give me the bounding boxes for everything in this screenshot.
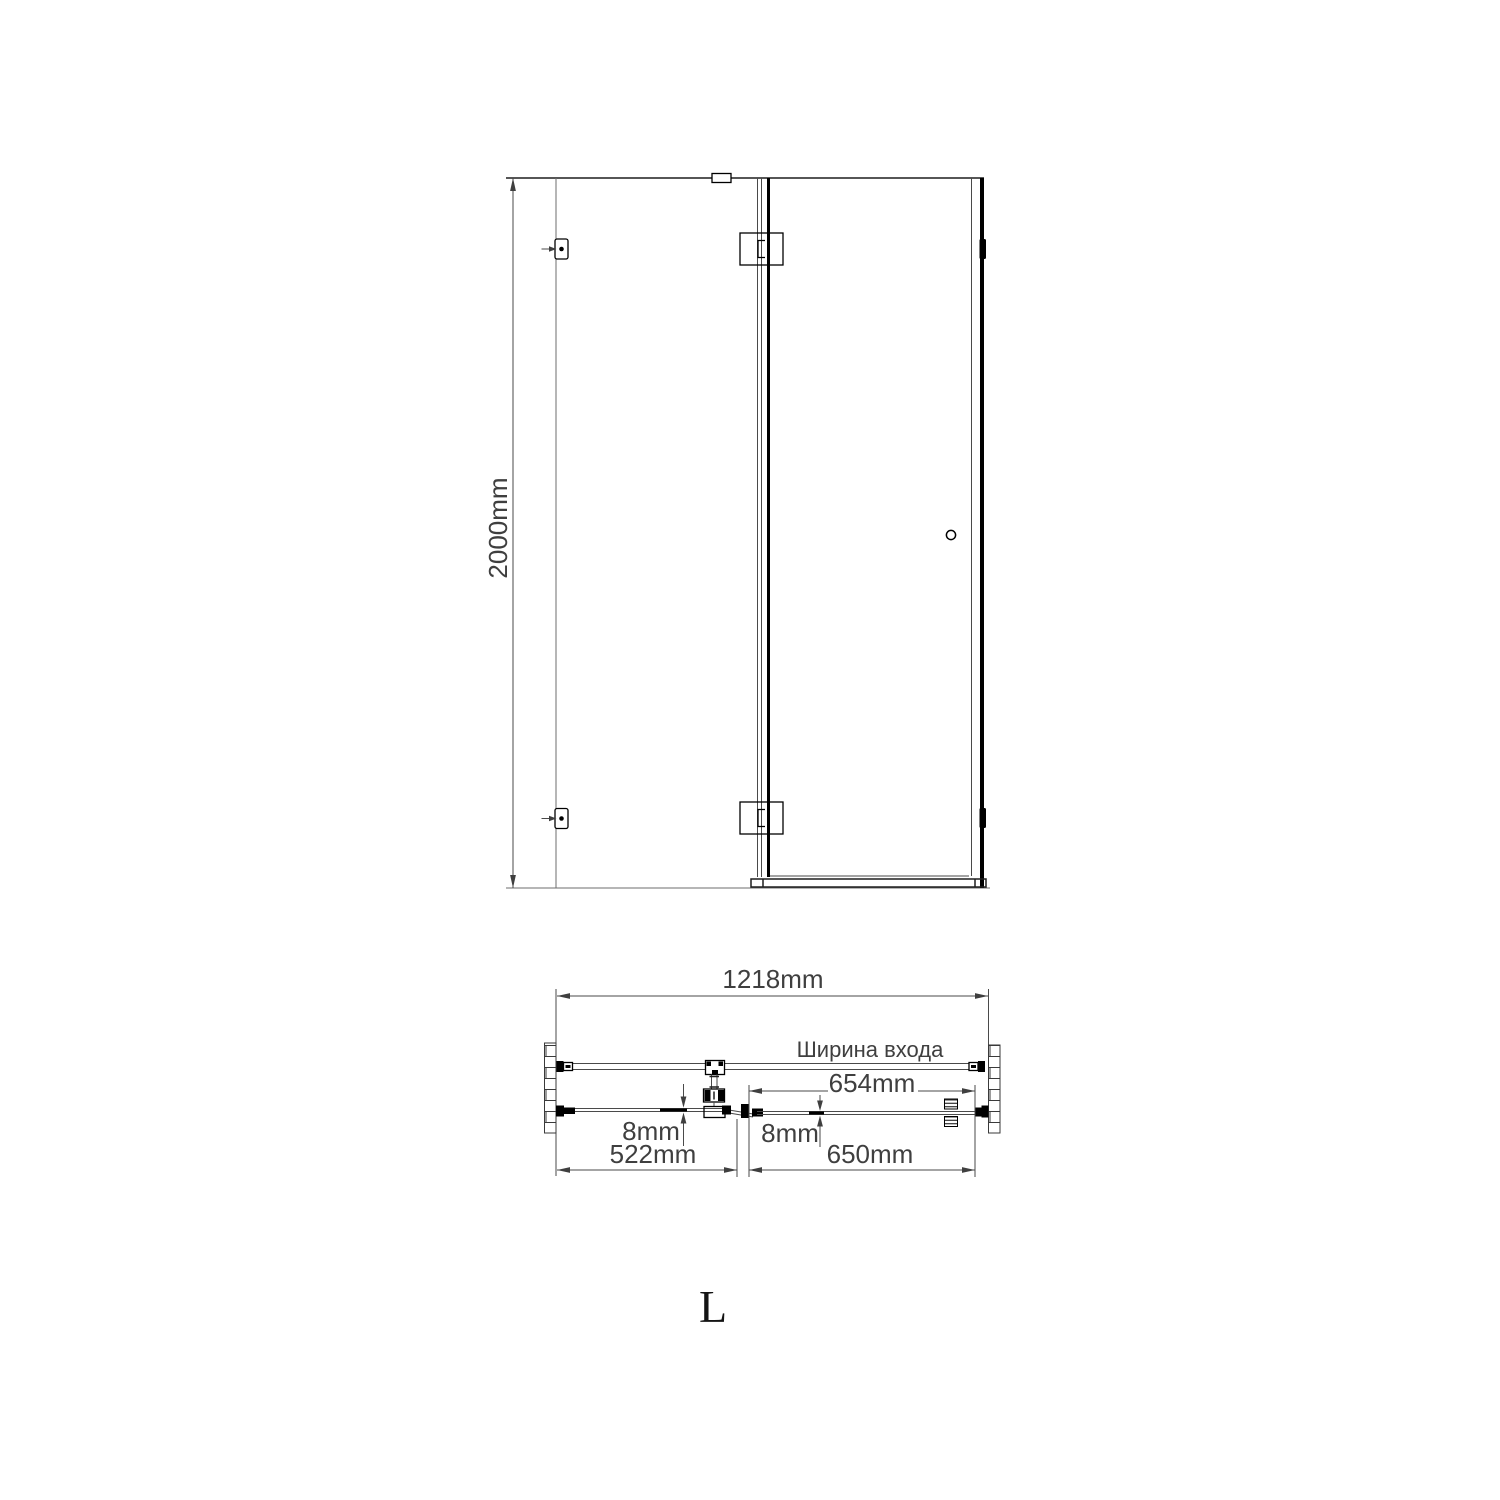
plan-view: 1218mm (545, 964, 1001, 1177)
top-support-bracket (712, 174, 731, 183)
right-wall-section (989, 1045, 1001, 1133)
wall-bracket-top (542, 239, 569, 259)
entrance-width-label: Ширина входа (797, 1037, 945, 1062)
rail-wall-connector-right (969, 1061, 985, 1072)
wall-bracket-bottom (542, 809, 569, 829)
rail-support-arm (704, 1075, 725, 1107)
door-knob-plan (945, 1099, 958, 1127)
height-dimension: 2000mm (483, 178, 516, 888)
rail-center-clamp (706, 1061, 725, 1075)
height-dimension-label: 2000mm (483, 477, 513, 578)
glass-wall-connector-left (556, 1106, 575, 1117)
total-width-label: 1218mm (722, 964, 823, 994)
door-seal-tab-top (980, 239, 987, 259)
door-glass-thickness-label: 8mm (761, 1118, 819, 1148)
bottom-threshold (751, 879, 986, 887)
left-wall-section (545, 1043, 557, 1133)
technical-drawing-page: 2000mm 1218mm (0, 0, 1500, 1500)
orientation-letter: L (699, 1281, 727, 1332)
entrance-width-value: 654mm (829, 1068, 916, 1098)
door-knob (946, 530, 955, 539)
support-rail (557, 1061, 986, 1107)
hinge-stile (758, 178, 769, 877)
glass-wall-connector-right (975, 1106, 989, 1118)
fixed-glass-thickness-callout: 8mm (622, 1084, 686, 1146)
door-width-label: 650mm (827, 1139, 914, 1169)
door-seal-tab-bottom (980, 808, 987, 828)
rail-wall-connector-left (557, 1061, 573, 1072)
shower-enclosure-drawing: 2000mm 1218mm (0, 0, 1500, 1500)
front-elevation-view: 2000mm (483, 174, 990, 889)
fixed-panel-width-label: 522mm (610, 1139, 697, 1169)
door-glass-thickness-callout: 8mm (761, 1095, 823, 1148)
